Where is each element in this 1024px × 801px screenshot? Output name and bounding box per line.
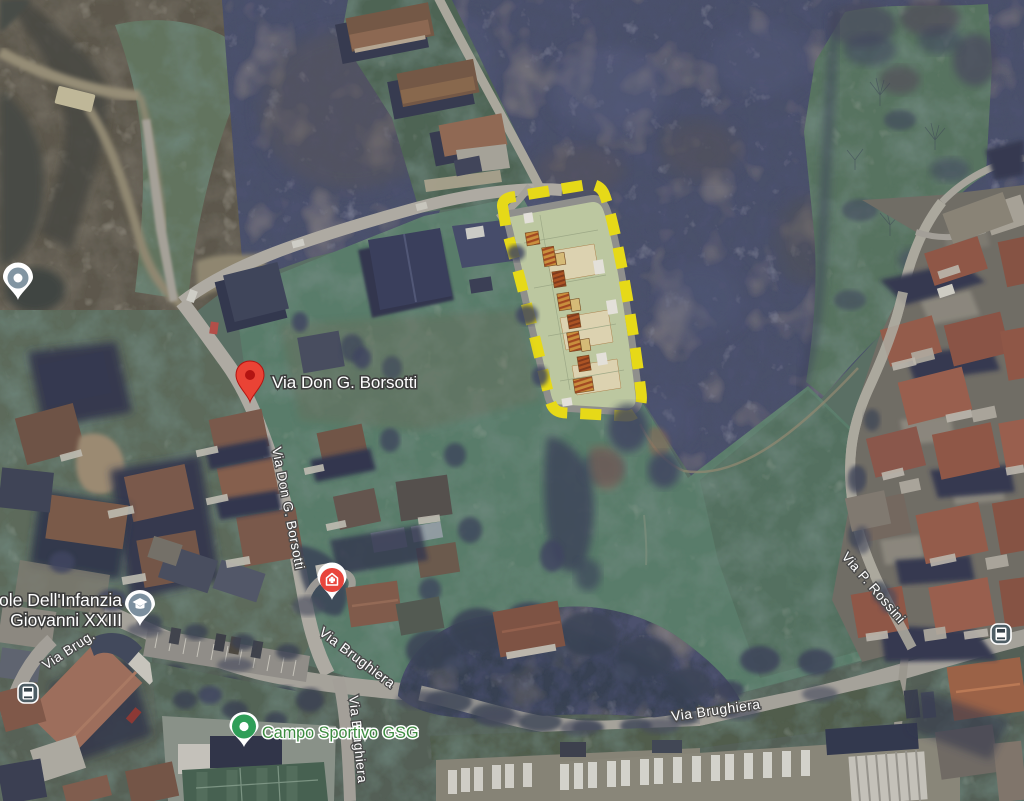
svg-text:Via Don G. Borsotti: Via Don G. Borsotti [272,373,417,392]
svg-text:Campo Sportivo GSG: Campo Sportivo GSG [262,724,419,742]
svg-text:Giovanni XXIII: Giovanni XXIII [10,610,122,630]
svg-text:uole Dell'Infanzia: uole Dell'Infanzia [0,590,122,610]
